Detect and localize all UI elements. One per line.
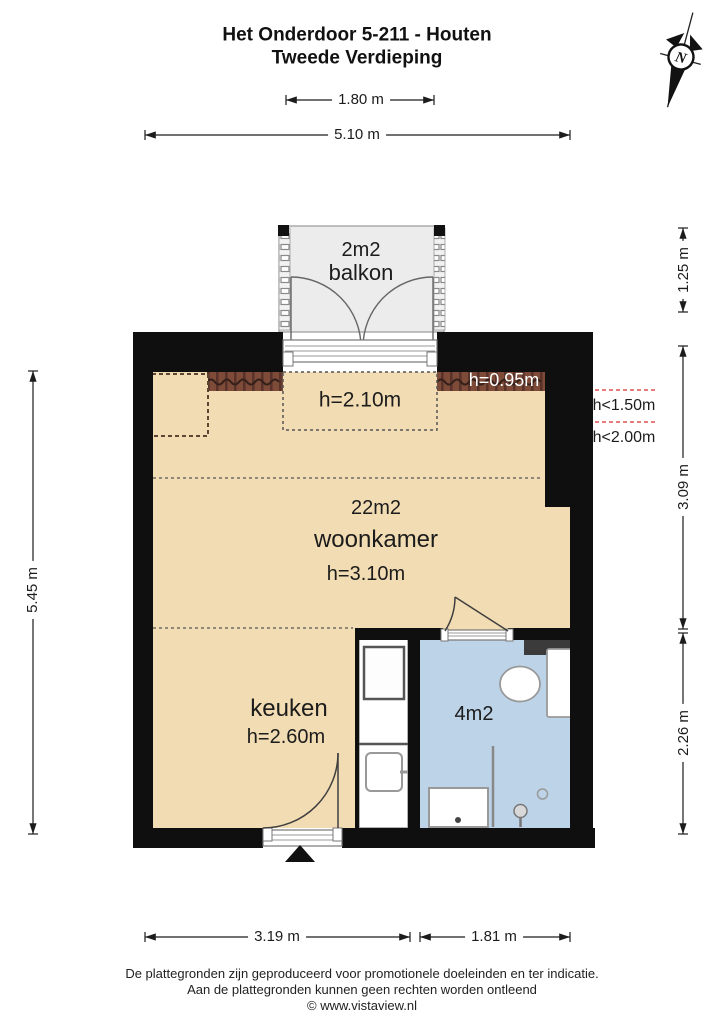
wall-bottom-right: [342, 828, 595, 848]
balcony-door-sill: [283, 340, 437, 366]
wall-right-thick-leg: [545, 332, 593, 507]
dim-label-bottom-right: 1.81 m: [465, 929, 523, 946]
wall-bathroom-top-right: [508, 628, 570, 640]
dim-label-bottom-left: 3.19 m: [248, 929, 306, 946]
kitchen-height-label: h=2.60m: [247, 726, 325, 748]
entrance-arrow-icon: [285, 845, 315, 862]
washbasin-icon: [429, 788, 488, 827]
footer-credit: © www.vistaview.nl: [307, 999, 417, 1013]
knee-wall-height-label: h=0.95m: [469, 371, 540, 391]
kitchen-name-label: keuken: [250, 696, 327, 722]
plan-title-line2: Tweede Verdieping: [272, 49, 443, 70]
footer-disclaimer-line1: De plattegronden zijn geproduceerd voor …: [125, 967, 598, 981]
wall-left: [133, 332, 153, 848]
balcony-post-left: [278, 225, 289, 236]
wall-counter-edge: [355, 628, 359, 828]
balcony-railing-right: [434, 228, 445, 330]
kitchen-counter: [359, 637, 415, 828]
dim-label-balcony-depth: 1.25 m: [676, 241, 693, 299]
stove-icon: [364, 647, 404, 699]
wall-top-left: [133, 332, 283, 372]
balcony-post-right: [434, 225, 445, 236]
living-height-label: h=3.10m: [327, 563, 405, 585]
wall-bottom-left: [133, 828, 263, 848]
bathroom-door-sill: [441, 629, 513, 641]
dim-label-total-width: 5.10 m: [328, 127, 386, 144]
wall-bathroom-top-left: [355, 628, 443, 640]
dim-label-living-depth: 3.09 m: [676, 458, 693, 516]
entrance-door-sill: [263, 828, 342, 846]
compass-icon: N: [647, 7, 713, 113]
plan-title-line1: Het Onderdoor 5-211 - Houten: [222, 26, 491, 47]
slope-label-150: h<1.50m: [593, 397, 656, 415]
footer-disclaimer-line2: Aan de plattegronden kunnen geen rechten…: [187, 983, 537, 997]
bathroom-area-label: 4m2: [455, 703, 494, 725]
living-name-label: woonkamer: [314, 527, 438, 553]
skylight-dashed-square: [152, 374, 208, 436]
living-area-label: 22m2: [351, 497, 401, 519]
dim-label-balcony-width: 1.80 m: [332, 92, 390, 109]
dormer-height-label: h=2.10m: [319, 388, 401, 411]
slope-label-200: h<2.00m: [593, 429, 656, 447]
balcony-railing-left: [279, 228, 290, 330]
balcony-name-label: balkon: [329, 261, 394, 285]
dim-label-total-depth: 5.45 m: [25, 561, 42, 619]
balcony-area-label: 2m2: [342, 239, 381, 261]
wall-bathroom-left: [408, 628, 420, 828]
dim-label-kitchen-depth: 2.26 m: [676, 704, 693, 762]
floorplan-page: N Het Onderdoor 5-211 - Houten Tweede Ve…: [0, 0, 724, 1024]
